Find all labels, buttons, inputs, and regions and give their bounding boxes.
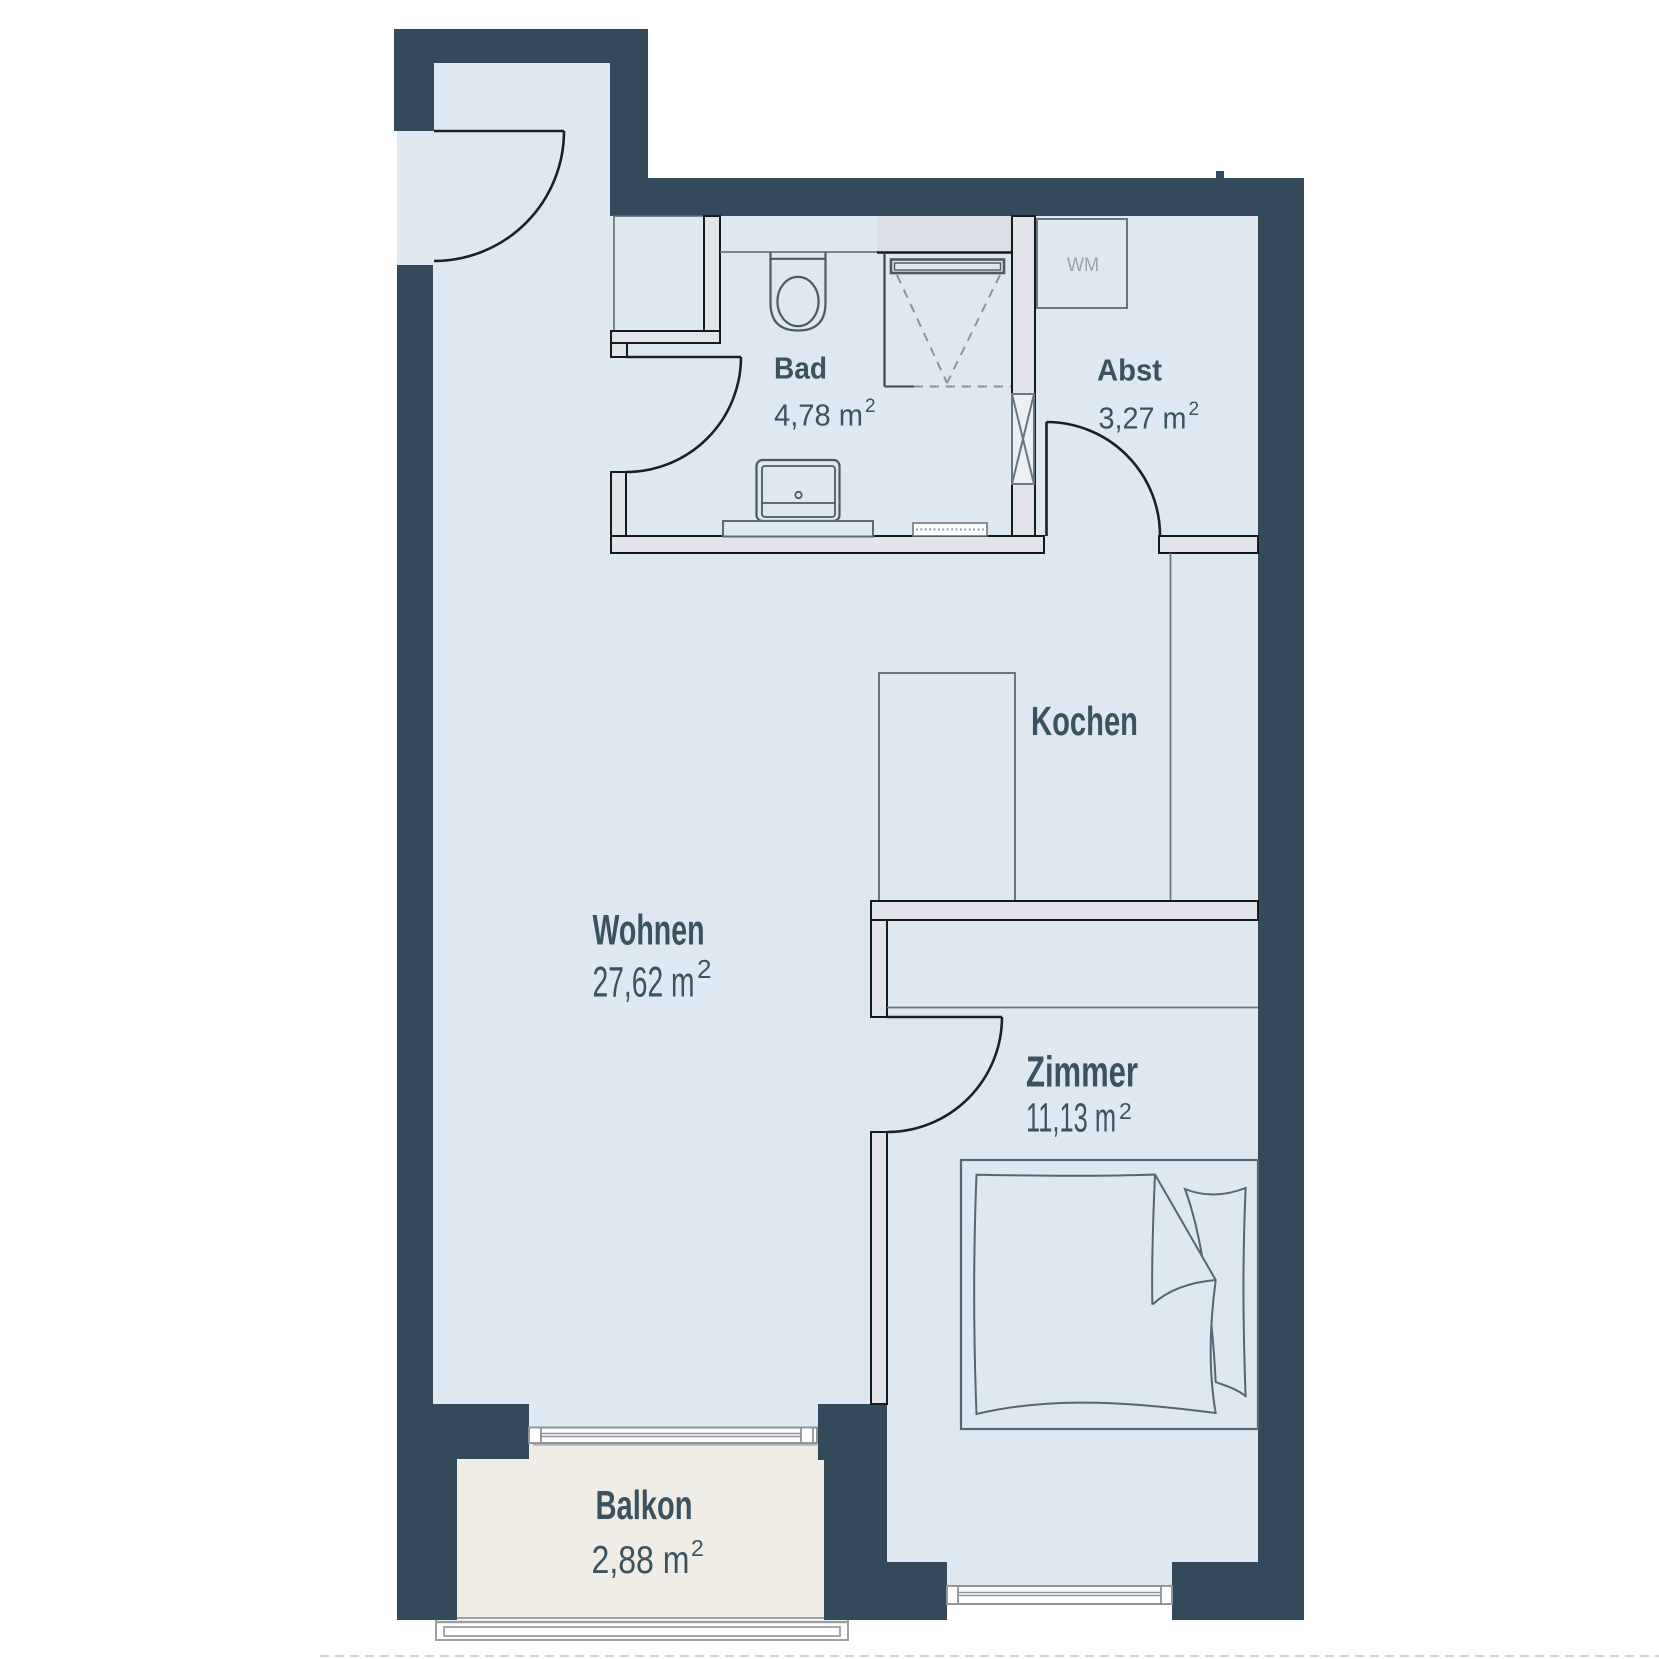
svg-text:2,88 m: 2,88 m xyxy=(592,1539,690,1582)
svg-text:Wohnen: Wohnen xyxy=(593,907,705,955)
svg-text:Abst: Abst xyxy=(1097,353,1162,388)
svg-text:2: 2 xyxy=(1189,399,1200,420)
svg-text:4,78 m: 4,78 m xyxy=(774,398,863,433)
svg-text:3,27 m: 3,27 m xyxy=(1099,401,1187,436)
svg-text:11,13 m: 11,13 m xyxy=(1026,1095,1116,1141)
svg-text:Kochen: Kochen xyxy=(1031,698,1138,744)
svg-text:2: 2 xyxy=(1119,1098,1132,1124)
svg-text:2: 2 xyxy=(691,1535,704,1561)
svg-text:Balkon: Balkon xyxy=(596,1482,693,1528)
svg-text:2: 2 xyxy=(697,954,711,984)
svg-text:Zimmer: Zimmer xyxy=(1026,1048,1138,1097)
svg-text:WM: WM xyxy=(1067,255,1099,276)
svg-text:27,62 m: 27,62 m xyxy=(593,959,695,1007)
svg-text:Bad: Bad xyxy=(774,351,827,386)
svg-text:2: 2 xyxy=(865,396,876,417)
